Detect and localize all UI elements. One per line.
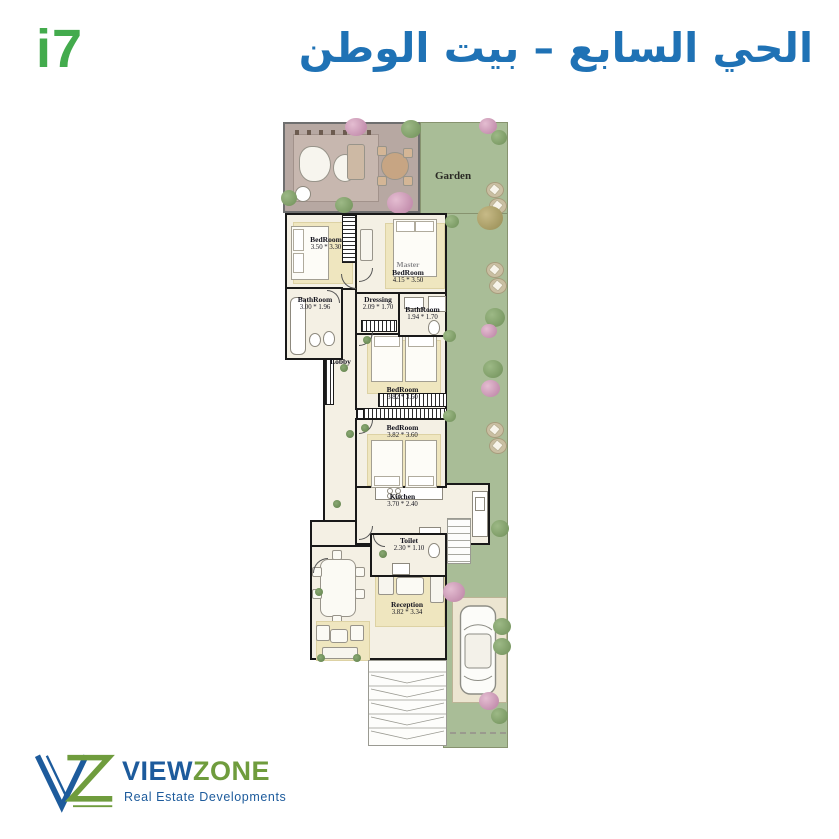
shower (428, 296, 446, 312)
kitchen-counter (375, 486, 443, 500)
terrace-chair (403, 176, 413, 186)
room-master-bedroom (355, 213, 447, 295)
tree-bush (281, 190, 297, 206)
tree-bush (443, 410, 456, 422)
brand-logo: VIEWZONE Real Estate Developments (30, 748, 290, 828)
plant (340, 364, 348, 372)
brand-wordmark: VIEWZONE (122, 756, 270, 787)
floor-plan: Garden Lobby (283, 118, 506, 746)
tree-bush (491, 130, 507, 145)
flower-bush (481, 380, 500, 397)
bathtub (290, 297, 306, 355)
wc (428, 320, 440, 335)
ramp-stairs (368, 660, 447, 746)
exterior-staircase (447, 518, 471, 564)
pillow (374, 336, 400, 347)
master-seat (360, 229, 373, 261)
pillow (408, 336, 434, 347)
dressing-rack (361, 320, 397, 332)
terrace-chair (377, 176, 387, 186)
dining-chair (332, 550, 342, 560)
bedroom1-wardrobe (342, 215, 356, 263)
brand-zone: ZONE (193, 756, 270, 786)
page-title-arabic: الحي السابع – بيت الوطن (253, 24, 813, 72)
plant (315, 588, 323, 596)
plant (333, 500, 341, 508)
tree-bush (445, 215, 459, 228)
terrace-table (347, 144, 365, 180)
pillow (374, 476, 400, 486)
plant (379, 550, 387, 558)
pillow (415, 221, 434, 232)
unit-code-logo: i7 (36, 18, 83, 80)
dining-chair (355, 567, 365, 577)
car (459, 604, 497, 696)
dining-chair (355, 589, 365, 599)
pillow (408, 476, 434, 486)
terrace-chair (377, 146, 387, 156)
driveway-gate (450, 732, 506, 734)
pillow (396, 221, 415, 232)
terrace-sofa (299, 146, 331, 182)
coffee-table (396, 577, 424, 595)
tree-bush (493, 618, 511, 635)
tree-bush (493, 638, 511, 655)
burner (395, 493, 401, 499)
brand-view: VIEW (122, 756, 193, 786)
pillow (293, 229, 304, 251)
toilet-wc (428, 543, 440, 558)
plant (361, 424, 369, 432)
plant (363, 336, 371, 344)
armchair (316, 625, 330, 641)
flower-bush (443, 582, 465, 602)
plant (317, 654, 325, 662)
room-bathroom-2 (398, 292, 447, 337)
tree-bush (491, 708, 508, 724)
terrace-chair (403, 148, 413, 158)
brand-tagline: Real Estate Developments (124, 790, 286, 804)
toilet-sink (392, 563, 410, 575)
flower-bush (345, 118, 367, 136)
page: i7 الحي السابع – بيت الوطن Garden (0, 0, 839, 839)
burner (387, 493, 393, 499)
flower-bush (481, 324, 497, 338)
viewzone-monogram-icon (30, 748, 116, 814)
flower-bush (479, 692, 499, 710)
terrace-pouf (295, 186, 311, 202)
tan-tree (477, 206, 503, 230)
room-dressing (355, 292, 401, 335)
kitchen-sink (475, 497, 485, 511)
wc (323, 331, 335, 346)
pillow (293, 253, 304, 273)
sink (404, 297, 424, 309)
plant (353, 654, 361, 662)
side-table (330, 629, 348, 643)
wardrobe-row (378, 393, 447, 407)
garden-label: Garden (435, 170, 471, 182)
tree-bush (491, 520, 509, 537)
sink (309, 333, 321, 347)
tree-bush (483, 360, 503, 378)
flower-bush (387, 192, 413, 214)
plant (346, 430, 354, 438)
tree-bush (443, 330, 456, 342)
tree-bush (335, 197, 353, 213)
tree-bush (401, 120, 421, 138)
armchair (350, 625, 364, 641)
